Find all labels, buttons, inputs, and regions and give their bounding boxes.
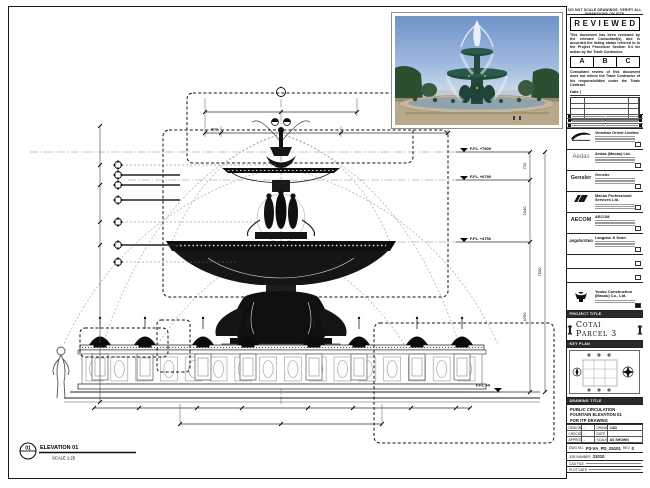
drawing-title-header: DRAWING TITLE	[567, 398, 643, 405]
langdonseah-logo: LangdonSeah	[569, 238, 593, 243]
reviewed-stamp: REVIEWED This document has been reviewed…	[567, 15, 643, 115]
grade-b[interactable]: B	[594, 57, 617, 67]
reviewed-paragraph-1: This document has been reviewed by the r…	[570, 33, 640, 54]
ornament-lamp-icon	[567, 322, 573, 336]
key-plan	[567, 348, 643, 398]
consultant-box-client: Venetian Orient Limited	[567, 129, 643, 150]
venetian-logo-icon	[569, 131, 593, 141]
job-number-value: 31010	[593, 454, 605, 459]
vdim-710: 710	[522, 162, 527, 169]
consultant-checkbox[interactable]	[635, 247, 641, 253]
consultant-name: Gensler	[595, 173, 641, 177]
dim-label: 800	[211, 127, 218, 132]
drawing-title: PUBLIC CIRCULATION FOUNTAIN ELEVATION 01…	[567, 405, 643, 424]
elevation-scale: SCALE 1:25	[52, 456, 76, 461]
consultant-box-architect: Aedas Aedas (Macau) Ltd.	[567, 150, 643, 171]
contractor-box: Youbo Construction (Macau) Co., Ltd.	[567, 283, 643, 311]
bottom-dimensions	[92, 404, 472, 426]
dwg-no-label: DWG NO.	[569, 446, 584, 450]
key-plan-header: KEY PLAN	[567, 341, 643, 348]
consultant-checkbox[interactable]	[635, 275, 641, 281]
project-title-header: PROJECT TITLE	[567, 311, 643, 318]
statue-group-upper	[248, 189, 315, 242]
consultant-checkbox[interactable]	[635, 142, 641, 148]
info-value: -	[582, 437, 595, 443]
fountain-photo	[391, 12, 563, 129]
rev-value: 0	[632, 446, 634, 451]
project-title: Cotai Parcel 3	[576, 320, 634, 338]
vdim-2040: 2040	[522, 206, 527, 216]
plot-date-label: PLOT DATE	[569, 468, 587, 472]
contractor-checkbox[interactable]	[635, 303, 641, 309]
empty-consultant-box	[567, 255, 643, 269]
middle-basin	[166, 241, 396, 297]
drawing-sheet: 800 710 2040 4750 7500 F.F.L +7500 F.F.L…	[0, 0, 650, 488]
vdim-7500: 7500	[537, 267, 542, 277]
consultant-checkbox[interactable]	[635, 184, 641, 190]
info-label: SCALE	[595, 437, 608, 443]
project-title-box: Cotai Parcel 3	[567, 318, 643, 341]
date-field[interactable]: Date |	[570, 89, 640, 96]
ornament-lamp-icon	[637, 322, 643, 336]
review-grade-boxes: A B C	[570, 56, 640, 68]
scale-figure	[53, 347, 69, 398]
consultant-box-qs: LangdonSeah Langdon & Seah	[567, 234, 643, 255]
aedas-logo: Aedas	[572, 154, 589, 160]
elevation-number: 01	[25, 446, 31, 452]
consultant-box-services: Macau Professional Services Ltd.	[567, 192, 643, 213]
contractor-logo-icon	[569, 292, 593, 302]
drawing-title-line-3: FOR ITP DRAWING	[570, 418, 640, 423]
grade-c[interactable]: C	[617, 57, 639, 67]
consultant-name: Aedas (Macau) Ltd.	[595, 152, 641, 156]
elevation-title: ELEVATION 01	[40, 445, 78, 451]
drawing-info-table: DESIGNED - DRAWN CAD CHECKED - DATE APPR…	[567, 424, 643, 444]
consultant-box-designer: Gensler Gensler	[567, 171, 643, 192]
info-label: APPROVED	[567, 437, 582, 443]
plot-date-row: PLOT DATE	[567, 467, 643, 473]
empty-consultant-box	[567, 269, 643, 283]
vdim-4750: 4750	[522, 312, 527, 322]
cad-file-label: CAD FILE	[569, 462, 584, 466]
grade-a[interactable]: A	[571, 57, 594, 67]
fountain-photo-image	[395, 16, 559, 125]
gensler-logo: Gensler	[571, 175, 591, 181]
elevation-tag: 01 ELEVATION 01 SCALE 1:25	[20, 443, 136, 461]
consultant-name: Venetian Orient Limited	[595, 131, 641, 135]
revision-table	[567, 115, 643, 129]
sheet-note: DO NOT SCALE DRAWINGS. VERIFY ALL DIMENS…	[567, 6, 643, 15]
aecom-logo: AECOM	[571, 217, 591, 223]
statue-group-lower	[215, 291, 346, 349]
job-number-label: JOB NUMBER	[569, 455, 591, 459]
job-number-row: JOB NUMBER 31010	[567, 453, 643, 461]
title-block-panel: DO NOT SCALE DRAWINGS. VERIFY ALL DIMENS…	[566, 6, 643, 479]
level-4750: F.F.L +4750	[470, 236, 492, 241]
reviewed-title: REVIEWED	[570, 17, 640, 31]
consultant-box-engineer: AECOM AECOM	[567, 213, 643, 234]
rev-label: REV	[623, 446, 630, 450]
consultant-name: Langdon & Seah	[595, 236, 641, 240]
contractor-name: Youbo Construction (Macau) Co., Ltd.	[595, 290, 641, 299]
consultant-checkbox[interactable]	[635, 261, 641, 267]
level-6790: F.F.L +6790	[470, 174, 492, 179]
consultant-name: Macau Professional Services Ltd.	[595, 194, 641, 203]
dwg-number-row: DWG NO. P3-VA_PD_25101 REV 0	[567, 444, 643, 453]
datum-lines	[30, 152, 456, 242]
level-0: F.F.L +0	[476, 383, 491, 388]
dwg-no-value: P3-VA_PD_25101	[586, 446, 621, 451]
revision-row	[567, 124, 643, 128]
dimension-chain-right: 710 2040 4750 7500	[522, 150, 547, 394]
consultant-name: AECOM	[595, 215, 641, 219]
mps-logo-icon	[576, 195, 586, 202]
consultant-checkbox[interactable]	[635, 226, 641, 232]
level-7500: F.F.L +7500	[470, 146, 492, 151]
reviewed-paragraph-2: Consultant review of this document does …	[570, 70, 640, 87]
consultant-checkbox[interactable]	[635, 205, 641, 211]
info-value: AS SHOWN	[608, 437, 643, 443]
consultant-checkbox[interactable]	[635, 163, 641, 169]
